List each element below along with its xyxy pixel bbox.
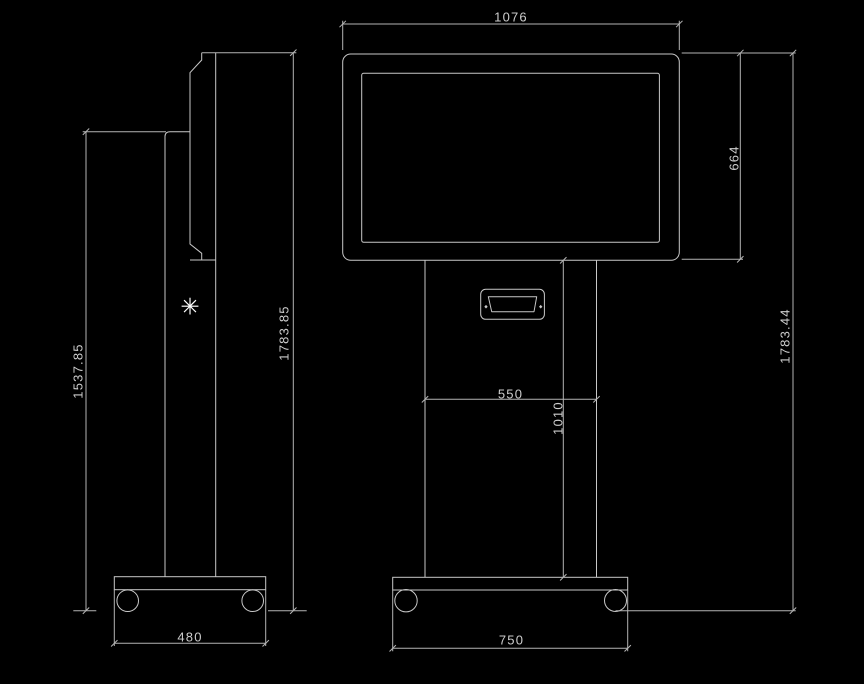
front-view — [343, 54, 680, 612]
front-wheel-left-icon — [395, 590, 417, 612]
front-dimensions — [340, 21, 797, 652]
cad-canvas: 1076 664 1783.44 550 1010 750 1537.85 17… — [0, 0, 864, 684]
slot-diamond-right-icon — [539, 305, 542, 309]
front-dim-ticks — [340, 21, 797, 652]
cad-drawing — [0, 0, 864, 684]
front-wheel-right-icon — [605, 590, 627, 612]
slot-diamond-left-icon — [484, 305, 487, 309]
side-column — [165, 132, 190, 577]
reference-mark-icon: ✳ — [180, 297, 199, 320]
receipt-slot-opening — [488, 297, 536, 312]
side-base-width-label: 480 — [177, 630, 202, 643]
front-base-width-label: 750 — [499, 634, 524, 647]
side-base-plate — [114, 577, 265, 590]
side-wheel-left-icon — [117, 590, 139, 612]
front-screen-bezel — [343, 54, 680, 260]
side-view — [114, 53, 265, 612]
front-screen-display — [362, 73, 660, 242]
side-column-height-dim — [73, 132, 166, 611]
screen-width-label: 1076 — [494, 10, 528, 23]
side-wheel-right-icon — [242, 590, 264, 612]
column-width-label: 550 — [498, 387, 523, 400]
front-base-plate — [393, 577, 628, 590]
screen-width-dim — [343, 21, 680, 50]
side-column-height-label: 1537.85 — [71, 343, 84, 398]
front-column — [425, 260, 597, 577]
front-total-height-dim — [616, 53, 796, 611]
side-total-height-label: 1783.85 — [278, 305, 291, 360]
front-total-height-label: 1783.44 — [779, 308, 792, 363]
column-height-label: 1010 — [551, 401, 564, 435]
screen-height-label: 664 — [727, 145, 740, 170]
